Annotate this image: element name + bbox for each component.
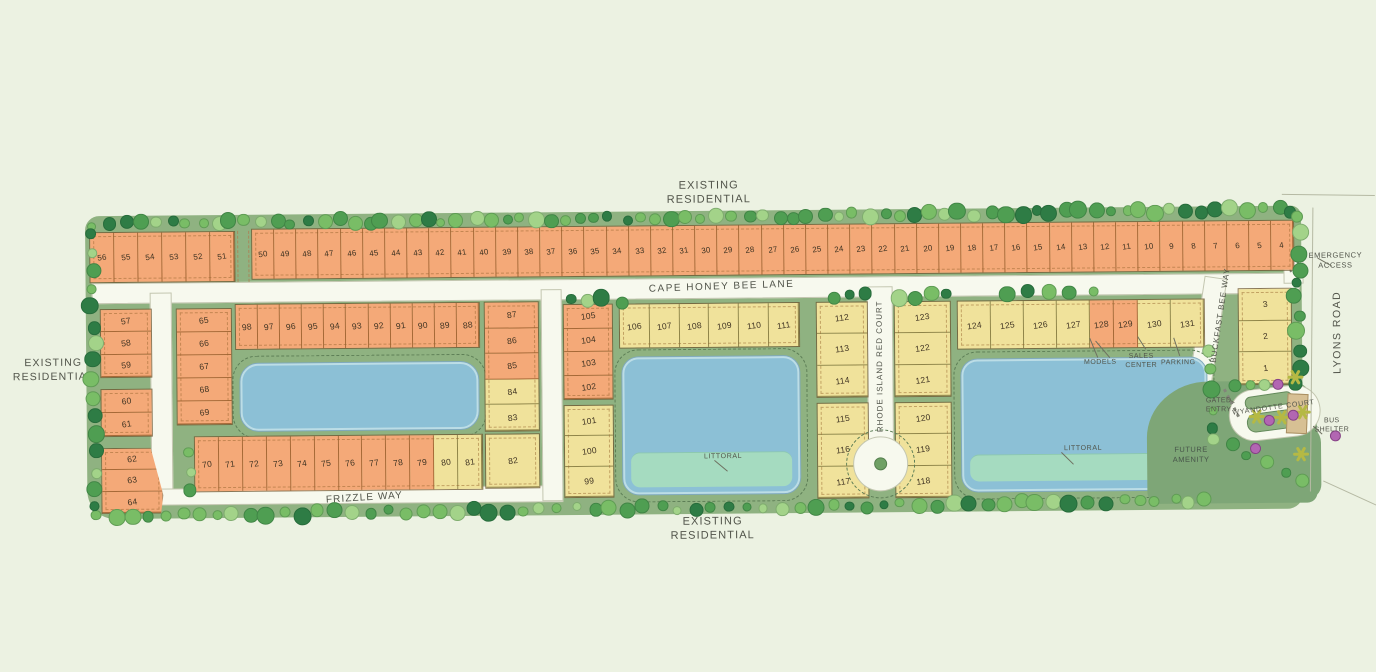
lot-51[interactable]: 51: [210, 232, 234, 281]
tree-icon: [1146, 205, 1163, 222]
tree-icon: [756, 209, 768, 221]
lot-number: 113: [834, 343, 849, 355]
lot-95[interactable]: 95: [302, 304, 324, 348]
lot-18[interactable]: 18: [961, 223, 984, 272]
lot-number: 16: [1011, 242, 1022, 252]
lot-88[interactable]: 88: [457, 303, 479, 347]
lot-32[interactable]: 32: [651, 226, 674, 275]
tree-icon: [846, 206, 858, 218]
tree-icon: [1292, 263, 1308, 279]
lot-4[interactable]: 4: [1271, 221, 1294, 270]
lot-number: 87: [506, 309, 517, 320]
lot-number: 46: [346, 248, 357, 258]
tree-icon: [142, 510, 154, 522]
lot-number: 130: [1146, 317, 1162, 329]
lot-126[interactable]: 126: [1024, 301, 1057, 348]
tree-icon: [284, 219, 294, 229]
tree-icon: [85, 391, 100, 406]
tree-icon: [724, 501, 734, 511]
lot-30[interactable]: 30: [695, 226, 718, 275]
lot-34[interactable]: 34: [607, 227, 630, 276]
lot-35[interactable]: 35: [584, 227, 607, 276]
lot-number: 128: [1093, 318, 1109, 330]
lot-number: 89: [440, 319, 451, 330]
lot-21[interactable]: 21: [895, 224, 918, 273]
lot-101[interactable]: 101: [565, 406, 613, 437]
shrub-icon: [1250, 443, 1261, 454]
lot-96[interactable]: 96: [280, 304, 302, 348]
tree-icon: [879, 500, 888, 509]
lot-11[interactable]: 11: [1116, 222, 1139, 271]
lot-number: 67: [199, 361, 210, 372]
lot-2[interactable]: 2: [1239, 320, 1291, 352]
lot-number: 58: [120, 337, 131, 348]
lot-89[interactable]: 89: [435, 303, 457, 347]
lot-number: 1: [1262, 362, 1268, 373]
lot-number: 105: [580, 310, 596, 322]
lot-number: 62: [126, 453, 137, 464]
tree-icon: [183, 447, 193, 457]
tree-icon: [1245, 380, 1255, 390]
lot-108[interactable]: 108: [679, 304, 709, 347]
lot-number: 91: [396, 320, 407, 331]
lot-number: 124: [966, 319, 982, 331]
tree-icon: [150, 216, 162, 228]
lot-111[interactable]: 111: [769, 303, 799, 346]
lot-38[interactable]: 38: [518, 227, 541, 276]
lot-63[interactable]: 63: [102, 470, 162, 492]
lot-67[interactable]: 67: [177, 355, 231, 378]
tree-icon: [1119, 494, 1130, 505]
lot-number: 68: [199, 384, 210, 395]
lot-number: 30: [701, 245, 712, 255]
parcel-line: [1323, 481, 1376, 508]
lot-33[interactable]: 33: [629, 226, 652, 275]
lot-27[interactable]: 27: [762, 225, 785, 274]
lot-103[interactable]: 103: [564, 352, 612, 376]
shrub-icon: [1272, 379, 1283, 390]
lot-number: 35: [590, 246, 601, 256]
tree-icon: [1134, 495, 1146, 507]
lot-block-row_124: 124125126127128129130131: [957, 298, 1205, 349]
lot-105[interactable]: 105: [564, 305, 612, 329]
tree-icon: [758, 504, 767, 513]
lot-127[interactable]: 127: [1057, 300, 1090, 347]
lot-number: 71: [225, 458, 236, 469]
lot-block-row_106: 106107108109110111: [619, 302, 800, 349]
tree-icon: [133, 214, 149, 230]
tree-icon: [858, 287, 872, 301]
lot-53[interactable]: 53: [162, 232, 186, 281]
lot-number: 11: [1122, 242, 1132, 252]
tree-icon: [528, 211, 545, 228]
lot-number: 48: [302, 249, 313, 259]
lot-50[interactable]: 50: [252, 230, 275, 279]
lot-number: 42: [435, 248, 446, 258]
lot-85[interactable]: 85: [485, 353, 538, 379]
lot-15[interactable]: 15: [1028, 223, 1051, 272]
tree-icon: [345, 505, 360, 520]
cul-de-sac-island: [874, 457, 887, 470]
lot-112[interactable]: 112: [817, 302, 867, 334]
lot-number: 59: [121, 360, 132, 371]
lot-87[interactable]: 87: [485, 302, 538, 328]
lot-75[interactable]: 75: [314, 436, 338, 490]
tree-icon: [807, 498, 825, 516]
lot-10[interactable]: 10: [1138, 222, 1161, 271]
tree-icon: [160, 510, 171, 521]
lot-number: 86: [506, 335, 517, 346]
lot-number: 125: [999, 319, 1015, 331]
lot-block-west_b: 6061: [100, 389, 152, 437]
existing-residential-label-top: EXISTING RESIDENTIAL: [654, 178, 764, 208]
lot-44[interactable]: 44: [385, 228, 408, 277]
lot-number: 77: [368, 457, 379, 468]
tree-icon: [371, 213, 388, 230]
lot-84[interactable]: 84: [485, 379, 538, 405]
tree-icon: [775, 502, 789, 516]
lot-120[interactable]: 120: [896, 403, 951, 435]
lot-37[interactable]: 37: [540, 227, 563, 276]
tree-icon: [81, 297, 98, 314]
lot-40[interactable]: 40: [474, 228, 497, 277]
tree-icon: [91, 510, 101, 520]
lot-42[interactable]: 42: [429, 228, 452, 277]
lot-number: 7: [1213, 241, 1219, 251]
lot-121[interactable]: 121: [895, 364, 950, 396]
lot-55[interactable]: 55: [114, 233, 138, 282]
lot-number: 76: [344, 457, 355, 468]
lot-number: 6: [1235, 241, 1241, 251]
lot-106[interactable]: 106: [620, 304, 650, 347]
lot-54[interactable]: 54: [138, 233, 162, 282]
lot-104[interactable]: 104: [564, 328, 612, 352]
lot-47[interactable]: 47: [319, 229, 342, 278]
lot-number: 82: [507, 455, 518, 466]
lot-79[interactable]: 79: [410, 435, 434, 489]
lot-number: 94: [329, 320, 340, 331]
tree-icon: [88, 321, 102, 335]
lot-61[interactable]: 61: [102, 413, 152, 436]
lot-number: 14: [1055, 242, 1066, 252]
palm-tree-icon: [1293, 453, 1309, 456]
lot-25[interactable]: 25: [806, 225, 829, 274]
tree-icon: [635, 212, 646, 223]
lot-78[interactable]: 78: [386, 435, 410, 489]
lot-76[interactable]: 76: [338, 436, 362, 490]
lot-number: 60: [121, 395, 132, 406]
tree-icon: [87, 425, 105, 443]
lot-number: 27: [767, 245, 778, 255]
lot-number: 49: [280, 249, 291, 259]
lot-number: 122: [915, 342, 931, 354]
tree-icon: [635, 498, 650, 513]
tree-icon: [1148, 495, 1159, 506]
tree-icon: [845, 290, 855, 300]
lot-128[interactable]: 128: [1090, 300, 1114, 347]
lot-109[interactable]: 109: [709, 304, 739, 347]
lot-12[interactable]: 12: [1094, 222, 1117, 271]
tree-icon: [1294, 310, 1305, 321]
lot-124[interactable]: 124: [958, 301, 991, 348]
lot-69[interactable]: 69: [178, 401, 232, 424]
lot-113[interactable]: 113: [817, 334, 867, 366]
tree-icon: [1197, 491, 1212, 506]
lot-46[interactable]: 46: [341, 229, 364, 278]
lot-90[interactable]: 90: [412, 303, 434, 347]
lot-8[interactable]: 8: [1183, 221, 1206, 270]
lot-49[interactable]: 49: [274, 229, 297, 278]
lot-86[interactable]: 86: [485, 328, 538, 354]
lot-block-row_70: 707172737475767778798081: [194, 434, 483, 493]
tree-icon: [1098, 496, 1113, 511]
lot-110[interactable]: 110: [739, 303, 769, 346]
tree-icon: [1026, 494, 1043, 511]
tree-icon: [663, 211, 679, 227]
lot-41[interactable]: 41: [451, 228, 474, 277]
lot-number: 108: [686, 319, 702, 331]
lot-number: 54: [145, 252, 156, 262]
lot-number: 115: [835, 413, 850, 425]
lot-92[interactable]: 92: [368, 304, 390, 348]
lot-number: 53: [169, 252, 180, 262]
lot-number: 78: [392, 457, 403, 468]
lot-39[interactable]: 39: [496, 227, 519, 276]
lot-29[interactable]: 29: [717, 226, 740, 275]
lot-number: 121: [915, 374, 931, 386]
lot-3[interactable]: 3: [1239, 289, 1291, 321]
lot-129[interactable]: 129: [1114, 300, 1138, 347]
lot-number: 45: [368, 248, 379, 258]
tree-icon: [199, 218, 209, 228]
lot-114[interactable]: 114: [817, 365, 867, 397]
lot-number: 8: [1190, 241, 1196, 251]
tree-icon: [619, 502, 635, 518]
tree-icon: [818, 207, 833, 222]
lot-100[interactable]: 100: [565, 436, 613, 467]
lot-number: 5: [1257, 241, 1263, 251]
lot-number: 41: [457, 247, 468, 257]
lot-number: 37: [546, 247, 557, 257]
lot-23[interactable]: 23: [850, 224, 873, 273]
lot-99[interactable]: 99: [565, 466, 613, 497]
lot-number: 64: [127, 496, 138, 507]
bus-shelter-label: BUS SHELTER: [1308, 416, 1356, 435]
lot-83[interactable]: 83: [486, 405, 539, 431]
lot-number: 61: [121, 418, 132, 429]
tree-icon: [1207, 433, 1219, 445]
emergency-access-label: EMERGENCY ACCESS: [1299, 250, 1371, 270]
lot-22[interactable]: 22: [872, 224, 895, 273]
lot-number: 23: [856, 244, 867, 254]
lot-107[interactable]: 107: [650, 304, 680, 347]
lot-number: 96: [285, 321, 296, 332]
lot-125[interactable]: 125: [991, 301, 1024, 348]
lot-16[interactable]: 16: [1005, 223, 1028, 272]
lot-number: 97: [263, 321, 274, 332]
tree-icon: [503, 214, 513, 224]
lot-number: 83: [507, 412, 518, 423]
lot-72[interactable]: 72: [243, 437, 267, 491]
lot-number: 12: [1100, 242, 1111, 252]
lot-68[interactable]: 68: [177, 378, 231, 401]
lot-number: 4: [1279, 241, 1285, 251]
tree-icon: [743, 502, 752, 511]
tree-icon: [588, 212, 599, 223]
lot-26[interactable]: 26: [784, 225, 807, 274]
tree-icon: [400, 507, 413, 520]
lot-52[interactable]: 52: [186, 232, 210, 281]
lot-19[interactable]: 19: [939, 224, 962, 273]
lot-number: 21: [900, 243, 911, 253]
tree-icon: [725, 211, 736, 222]
tree-icon: [1294, 344, 1308, 358]
lot-97[interactable]: 97: [258, 305, 280, 349]
lot-91[interactable]: 91: [390, 303, 412, 347]
lot-77[interactable]: 77: [362, 436, 386, 490]
tree-icon: [124, 508, 141, 525]
tree-icon: [881, 208, 892, 219]
lot-number: 25: [811, 244, 822, 254]
lot-number: 85: [506, 360, 517, 371]
gated-entry-label: GATED ENTRY: [1198, 396, 1240, 415]
lot-59[interactable]: 59: [101, 354, 151, 377]
lot-115[interactable]: 115: [818, 403, 868, 435]
lot-45[interactable]: 45: [363, 229, 386, 278]
lot-number: 63: [127, 475, 138, 486]
tree-icon: [1259, 379, 1271, 391]
lot-98[interactable]: 98: [236, 305, 258, 349]
lot-number: 102: [580, 381, 596, 393]
lot-number: 118: [916, 475, 931, 487]
lot-number: 103: [580, 357, 596, 369]
tree-icon: [615, 296, 628, 309]
lot-number: 55: [121, 252, 132, 262]
lot-number: 33: [634, 246, 645, 256]
lot-57[interactable]: 57: [101, 310, 151, 333]
lot-number: 112: [834, 312, 849, 324]
tree-icon: [237, 213, 250, 226]
lot-number: 73: [273, 458, 284, 469]
pond-mid: [622, 356, 800, 495]
lot-17[interactable]: 17: [983, 223, 1006, 272]
lot-14[interactable]: 14: [1050, 223, 1073, 272]
tree-icon: [89, 444, 104, 459]
lot-24[interactable]: 24: [828, 225, 851, 274]
tree-icon: [1291, 210, 1303, 222]
tree-icon: [794, 502, 806, 514]
street-label-rhode-island-red-court: RHODE ISLAND RED COURT: [874, 286, 886, 446]
tree-icon: [1287, 322, 1305, 340]
lot-65[interactable]: 65: [177, 309, 231, 332]
tree-icon: [1062, 286, 1076, 300]
site-plan: 5655545352515049484746454443424140393837…: [0, 0, 1376, 672]
lot-number: 43: [413, 248, 424, 258]
lot-60[interactable]: 60: [101, 390, 151, 413]
lot-74[interactable]: 74: [291, 436, 315, 490]
lot-13[interactable]: 13: [1072, 222, 1095, 271]
tree-icon: [1041, 284, 1057, 300]
lot-number: 47: [324, 248, 335, 258]
tree-icon: [1069, 201, 1087, 219]
tree-icon: [960, 495, 976, 511]
lot-28[interactable]: 28: [740, 225, 763, 274]
lot-5[interactable]: 5: [1249, 221, 1272, 270]
tree-icon: [86, 263, 101, 278]
tree-icon: [86, 481, 102, 497]
lot-31[interactable]: 31: [673, 226, 696, 275]
lot-block-col_123: 123122121: [894, 301, 952, 397]
lot-131[interactable]: 131: [1171, 299, 1204, 346]
lot-93[interactable]: 93: [346, 304, 368, 348]
lot-80[interactable]: 80: [434, 435, 458, 489]
tree-icon: [798, 209, 813, 224]
lot-number: 98: [241, 321, 252, 332]
lot-43[interactable]: 43: [407, 228, 430, 277]
tree-icon: [303, 215, 314, 226]
lot-81[interactable]: 81: [458, 435, 482, 489]
lot-70[interactable]: 70: [195, 437, 219, 491]
tree-icon: [592, 289, 609, 306]
lot-number: 40: [479, 247, 490, 257]
lot-82[interactable]: 82: [486, 434, 539, 487]
tree-icon: [318, 214, 333, 229]
lot-130[interactable]: 130: [1138, 300, 1171, 347]
lot-number: 52: [193, 252, 204, 262]
lot-102[interactable]: 102: [564, 375, 612, 399]
lot-48[interactable]: 48: [296, 229, 319, 278]
tree-icon: [930, 500, 944, 514]
lot-block-top_west: 565554535251: [89, 231, 235, 283]
tree-icon: [433, 505, 448, 520]
existing-residential-label-bottom: EXISTING RESIDENTIAL: [658, 514, 768, 544]
lot-123[interactable]: 123: [895, 302, 950, 334]
lot-9[interactable]: 9: [1160, 222, 1183, 271]
lot-number: 9: [1168, 241, 1174, 251]
lot-number: 101: [581, 414, 597, 426]
lot-number: 88: [462, 319, 473, 330]
lot-block-col_101: 10110099: [564, 405, 615, 498]
lot-20[interactable]: 20: [917, 224, 940, 273]
lot-58[interactable]: 58: [101, 332, 151, 355]
lot-122[interactable]: 122: [895, 333, 950, 365]
lot-73[interactable]: 73: [267, 436, 291, 490]
lot-94[interactable]: 94: [324, 304, 346, 348]
future-amenity-label: FUTURE AMENITY: [1165, 445, 1217, 465]
tree-icon: [774, 211, 788, 225]
lot-number: 29: [723, 245, 734, 255]
lot-number: 2: [1262, 331, 1268, 342]
tree-icon: [1015, 206, 1032, 223]
tree-icon: [1163, 203, 1175, 215]
tree-icon: [1260, 455, 1274, 469]
littoral-label-mid: LITTORAL: [693, 452, 753, 462]
tree-icon: [193, 507, 207, 521]
shrub-icon: [1264, 415, 1275, 426]
lot-number: 24: [834, 244, 845, 254]
lot-block-top_main: 5049484746454443424140393837363534333231…: [251, 220, 1294, 280]
lot-block-col_87: 8786858483: [484, 301, 540, 431]
lot-number: 3: [1262, 299, 1268, 310]
lot-block-col_321: 321: [1238, 288, 1293, 385]
lot-71[interactable]: 71: [219, 437, 243, 491]
tree-icon: [1059, 494, 1077, 512]
lot-66[interactable]: 66: [177, 332, 231, 355]
tree-icon: [828, 499, 840, 511]
tree-icon: [448, 213, 463, 228]
lot-36[interactable]: 36: [562, 227, 585, 276]
lot-number: 106: [626, 320, 642, 332]
